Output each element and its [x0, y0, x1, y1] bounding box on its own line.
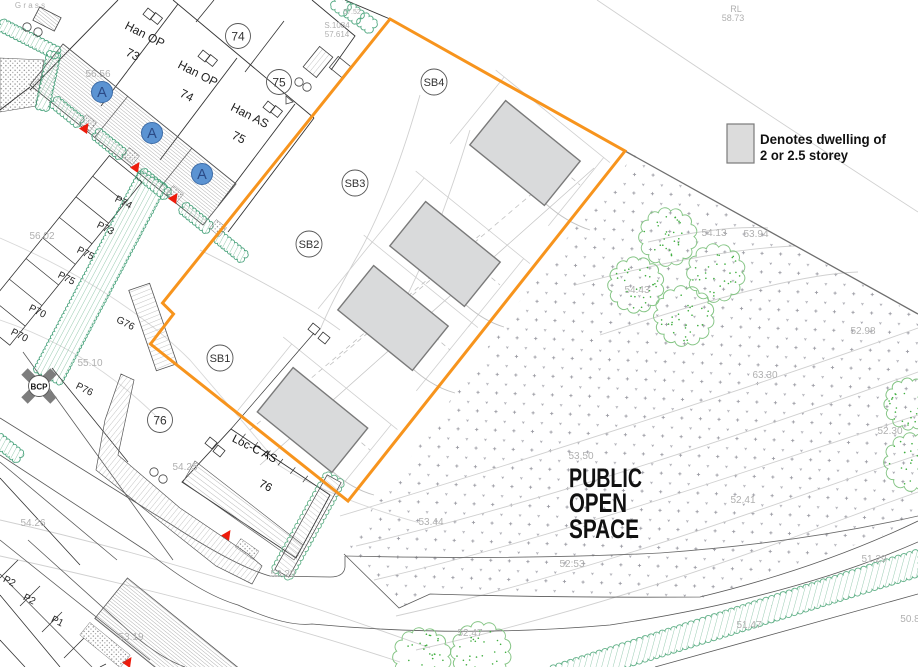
svg-text:50.8: 50.8 — [900, 614, 918, 625]
svg-text:75: 75 — [272, 75, 286, 89]
svg-text:74: 74 — [231, 29, 245, 43]
svg-text:53.19: 53.19 — [118, 632, 143, 643]
svg-text:54.13: 54.13 — [701, 228, 726, 239]
svg-text:BCP: BCP — [31, 383, 49, 392]
svg-text:52:53: 52:53 — [559, 559, 584, 570]
svg-text:54.43: 54.43 — [624, 285, 649, 296]
svg-text:63.30: 63.30 — [752, 370, 777, 381]
svg-text:51.47: 51.47 — [736, 620, 761, 631]
svg-text:55.10: 55.10 — [77, 358, 102, 369]
svg-text:76: 76 — [153, 413, 167, 427]
svg-text:SB1: SB1 — [210, 353, 231, 365]
svg-text:53.44: 53.44 — [418, 517, 443, 528]
svg-text:58.73: 58.73 — [722, 13, 745, 23]
svg-text:54.25: 54.25 — [172, 462, 197, 473]
svg-text:51.29: 51.29 — [861, 554, 886, 565]
svg-text:A: A — [97, 85, 107, 101]
svg-text:SPACE: SPACE — [569, 514, 639, 544]
svg-text:52.41: 52.41 — [730, 495, 755, 506]
svg-text:SB4: SB4 — [424, 77, 445, 89]
svg-text:57.614: 57.614 — [325, 30, 350, 39]
svg-text:A: A — [147, 126, 157, 142]
svg-text:56.56: 56.56 — [85, 69, 110, 80]
svg-text:57.52: 57.52 — [343, 9, 361, 16]
svg-text:SB3: SB3 — [345, 178, 366, 190]
svg-text:53.94: 53.94 — [743, 229, 768, 240]
svg-text:S.1084: S.1084 — [324, 21, 350, 30]
svg-text:SB2: SB2 — [299, 239, 320, 251]
svg-text:53.29: 53.29 — [270, 569, 295, 580]
svg-text:G r a s s: G r a s s — [15, 1, 45, 10]
svg-text:Denotes dwelling of: Denotes dwelling of — [760, 131, 886, 147]
svg-text:2 or 2.5 storey: 2 or 2.5 storey — [760, 147, 848, 163]
svg-text:53,50: 53,50 — [568, 451, 593, 462]
svg-text:52.30: 52.30 — [877, 426, 902, 437]
svg-text:54.26: 54.26 — [20, 518, 45, 529]
svg-text:56.02: 56.02 — [29, 231, 54, 242]
svg-text:52.47: 52.47 — [457, 628, 482, 639]
svg-text:A: A — [197, 167, 207, 183]
svg-text:52.98: 52.98 — [850, 326, 875, 337]
